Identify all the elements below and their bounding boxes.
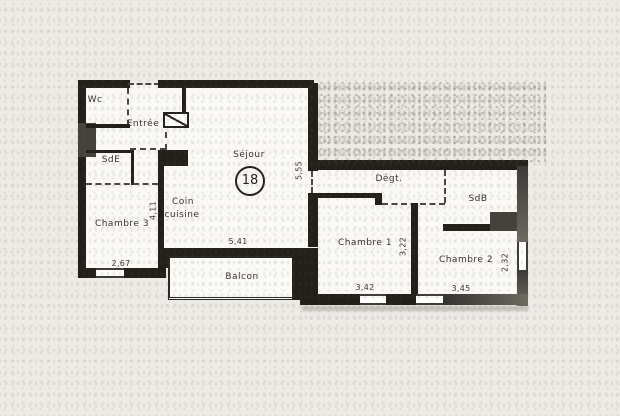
chambre2-window [416,294,443,305]
room-label-sde: SdE [86,155,136,165]
sejour-area-badge: 18 [235,166,265,196]
room-label-coin-cuisine-line1: Coin [158,197,208,207]
wall-cuisine-pier [158,150,188,166]
wall-top-dashed-gap [128,83,160,85]
wall-chambre3-bottom-a [78,268,96,278]
wall-bottom-right-c [443,294,528,305]
wall-balcon-right [292,256,318,300]
dim-sejour-height: 5,55 [295,156,304,186]
chambre2-side-window [517,242,528,270]
room-label-sejour: Séjour [219,150,279,160]
wall-chambre3-bottom-b [124,268,166,278]
dim-chambre1-height: 3,22 [399,232,408,262]
left-block-floor [82,84,312,270]
room-label-entree: Entrée [113,119,173,129]
wall-chambre1-chambre2-divider [411,203,418,294]
chambre1-window [360,294,386,305]
room-label-balcon: Balcon [212,272,272,282]
dim-chambre2-width: 3,45 [436,284,486,293]
partition-sejour-degt-dashed [311,171,313,193]
chambre3-window [96,268,124,278]
wall-chambre1-top-step [375,193,382,205]
room-label-chambre2: Chambre 2 [426,255,506,265]
wall-bottom-right-b [386,294,416,305]
wall-sdb-notch [490,212,517,231]
partition-sde-bottom-dashed [86,183,158,185]
wall-top-left-b [158,80,314,88]
wall-left-outer [78,80,86,278]
dim-chambre3-height: 4,11 [149,196,158,226]
partition-sdb-left-dashed [444,170,446,203]
dim-chambre1-width: 3,42 [340,283,390,292]
wall-chambre1-left-a [308,193,318,247]
floor-plan: Wc Entrée SdE Chambre 3 Coin cuisine Séj… [0,0,620,416]
dim-sejour-width: 5,41 [213,237,263,246]
wall-sejour-bottom [158,248,318,256]
scan-noise-region [318,80,546,162]
room-label-coin-cuisine-line2: cuisine [157,210,207,220]
room-label-wc: Wc [75,95,115,105]
wall-right-outer-a [517,166,528,242]
wall-entree-right [182,88,186,113]
scan-shadow [302,306,528,311]
dim-chambre3-width: 2,67 [96,259,146,268]
room-label-sdb: SdB [448,194,508,204]
wall-chambre1-top [313,193,375,198]
wall-sde-top [86,150,134,153]
wall-right-block-top [308,160,528,170]
wall-sejour-right [308,83,318,171]
room-label-degt: Dégt. [359,174,419,184]
room-label-chambre1: Chambre 1 [325,238,405,248]
dim-chambre2-height: 2,32 [501,248,510,278]
